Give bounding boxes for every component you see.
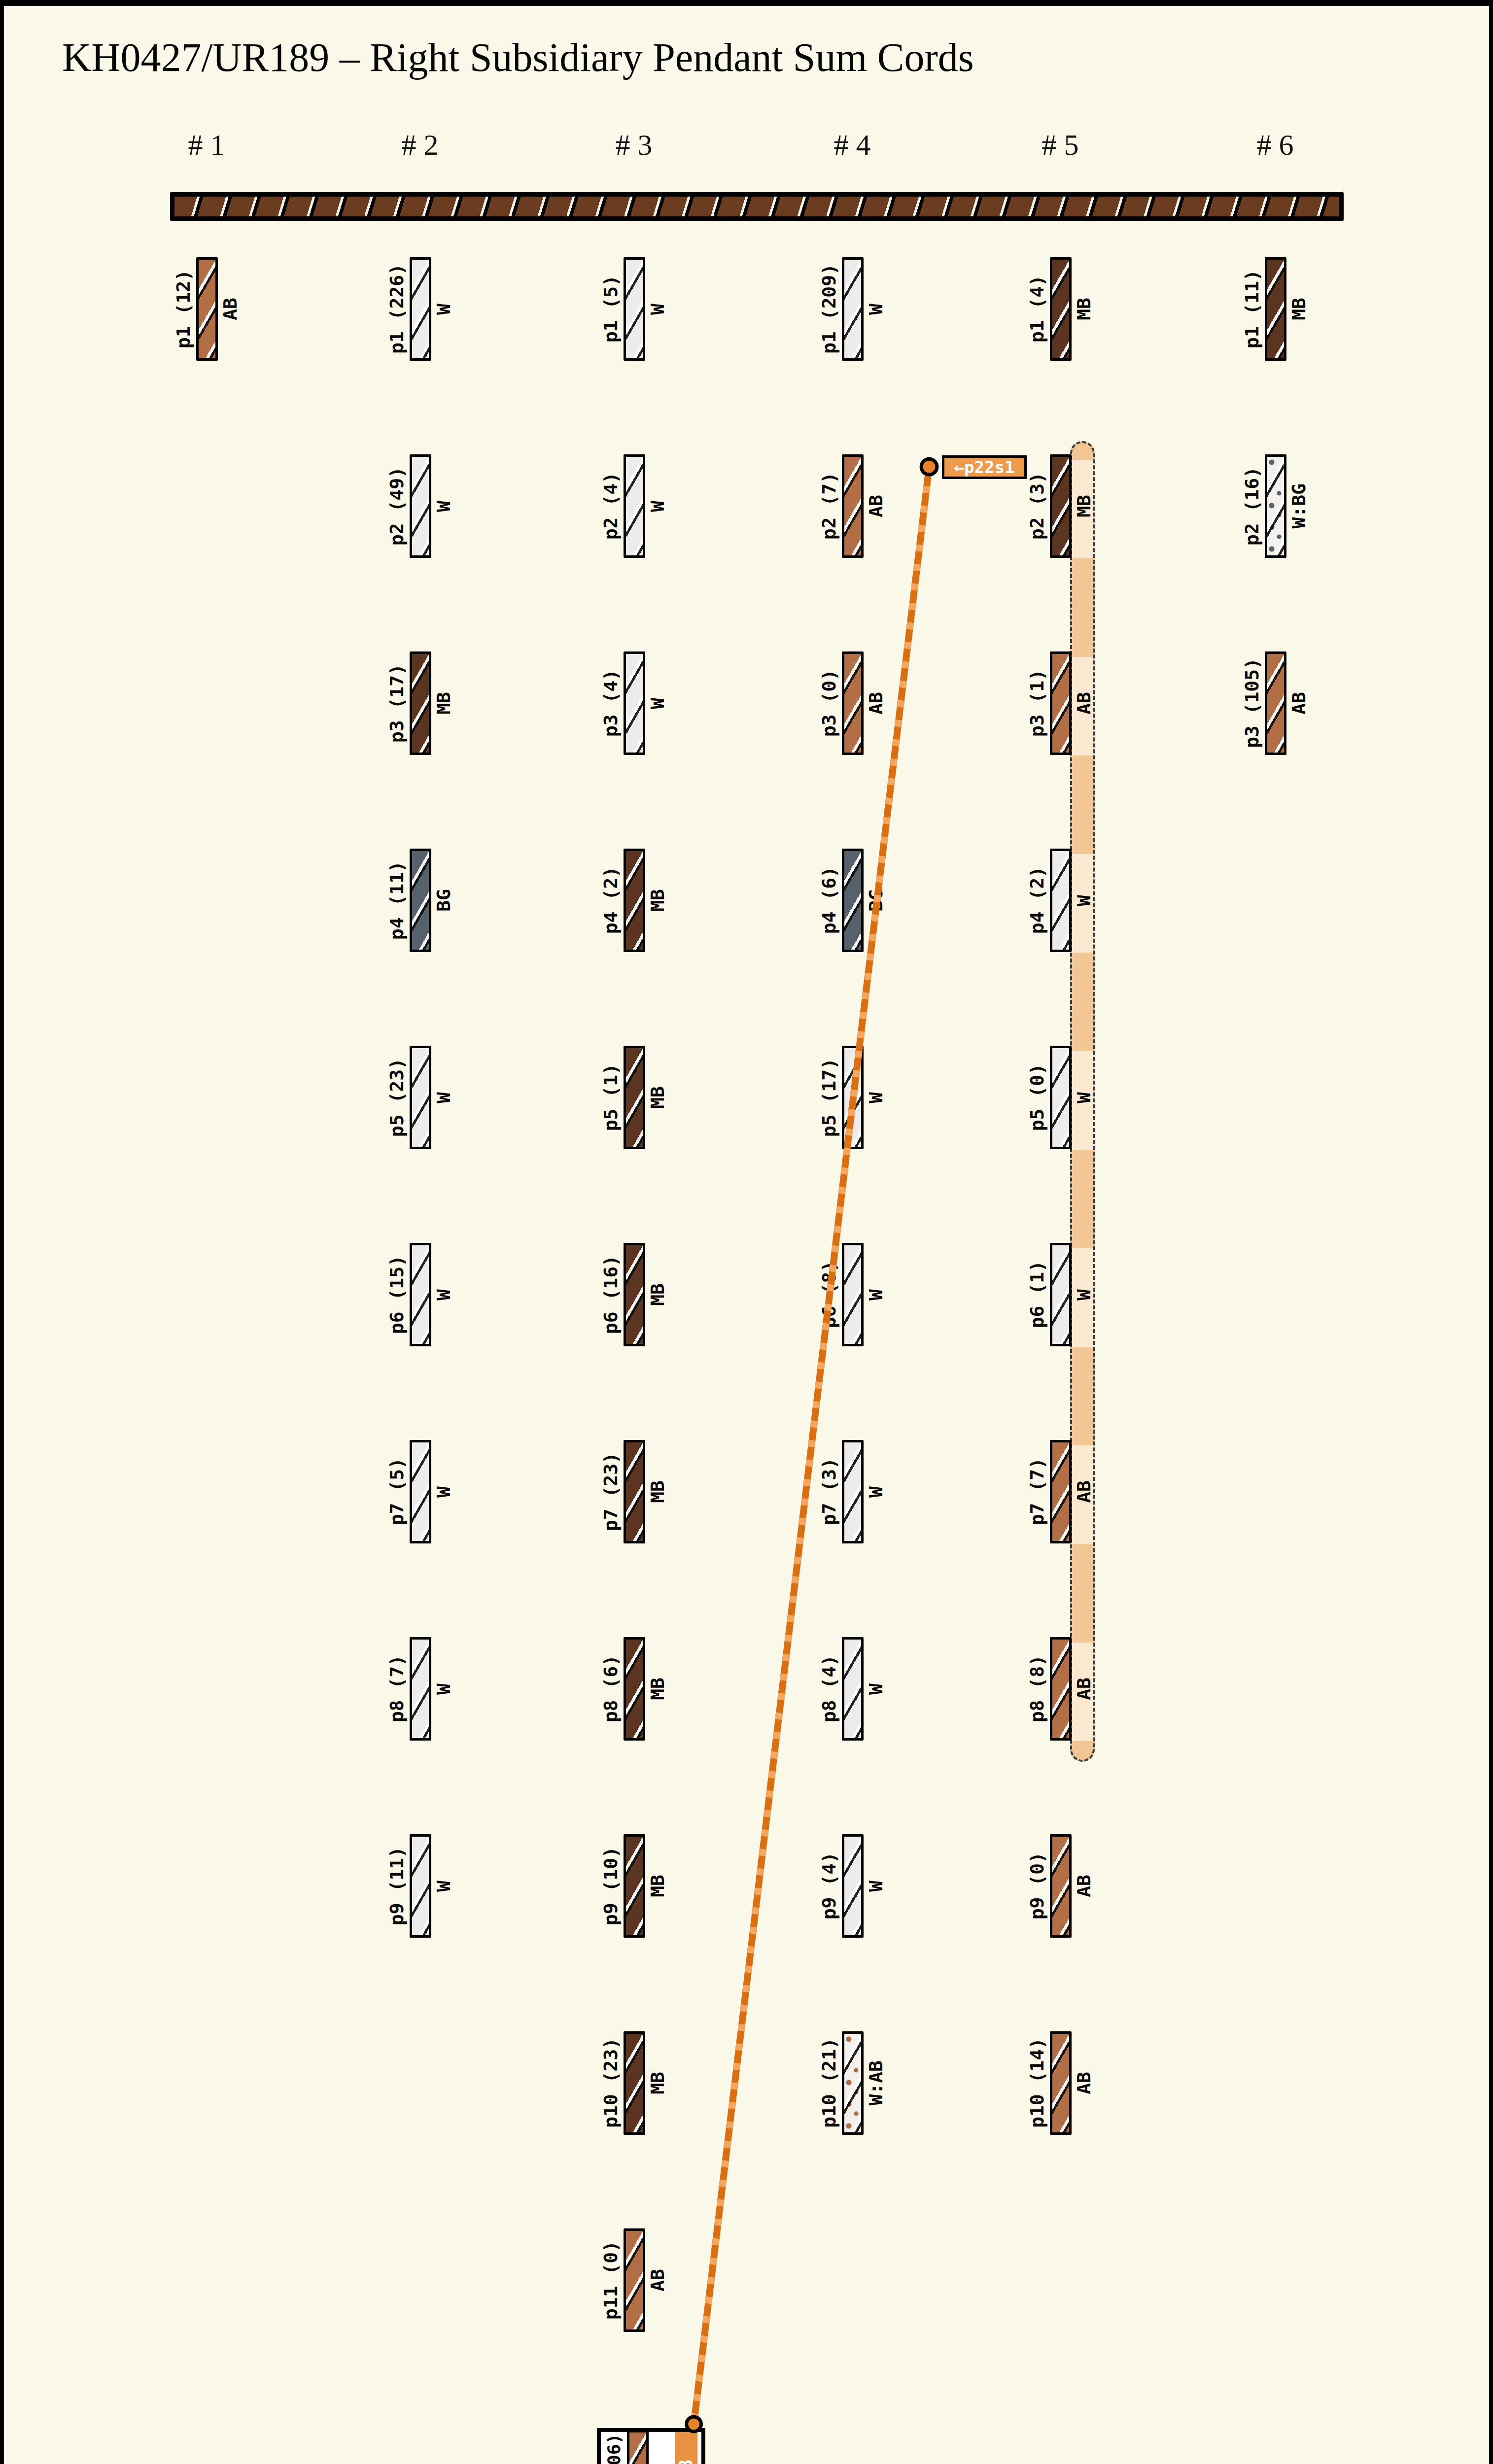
pendant-label: p1 (12) bbox=[174, 270, 194, 348]
pendant-#4-p1: p1 (209)W bbox=[819, 260, 886, 358]
pendant-label: p7 (5) bbox=[387, 1458, 407, 1525]
pendant-color-code: MB bbox=[1074, 298, 1094, 320]
pendant-bar-#4-p10[interactable] bbox=[842, 2031, 864, 2135]
pendant-#3-p4: p4 (2)MB bbox=[601, 851, 668, 950]
pendant-color-code: W bbox=[866, 1881, 886, 1892]
pendant-label: p2 (4) bbox=[601, 472, 621, 540]
pendant-#5-p1: p1 (4)MB bbox=[1027, 260, 1094, 358]
pendant-color-code: AB bbox=[1074, 692, 1094, 715]
pendant-label: p1 (226) bbox=[387, 264, 407, 354]
pendant-#3-p7: p7 (23)MB bbox=[601, 1442, 668, 1541]
pendant-label: p3 (17) bbox=[387, 664, 407, 743]
column-header-2: # 2 bbox=[366, 128, 474, 162]
pendant-color-code: AB bbox=[1074, 1480, 1094, 1503]
pendant-#2-p4: p4 (11)BG bbox=[387, 851, 454, 950]
pendant-#5-p7: p7 (7)AB bbox=[1027, 1442, 1094, 1541]
pendant-label: p2 (16) bbox=[1242, 467, 1262, 546]
connector-overlay bbox=[4, 6, 1489, 2464]
subsidiary-target-strip[interactable]: →p38 bbox=[675, 2432, 697, 2464]
pendant-bar-#5-p3[interactable] bbox=[1050, 651, 1072, 755]
pendant-label: p10 (14) bbox=[1027, 2038, 1047, 2128]
pendant-label: p1 (4) bbox=[1027, 275, 1047, 342]
pendant-bar-#3-p2[interactable] bbox=[624, 454, 645, 558]
subsidiary-connector-line bbox=[694, 467, 929, 2424]
pendant-bar-#6-p2[interactable] bbox=[1265, 454, 1286, 558]
pendant-#3-p9: p9 (10)MB bbox=[601, 1837, 668, 1935]
pendant-color-code: MB bbox=[648, 1875, 668, 1897]
pendant-bar-#5-p1[interactable] bbox=[1050, 257, 1072, 361]
pendant-bar-#3-p4[interactable] bbox=[624, 849, 645, 952]
pendant-bar-#3-p5[interactable] bbox=[624, 1046, 645, 1149]
page-title: KH0427/UR189 – Right Subsidiary Pendant … bbox=[62, 34, 974, 81]
subsidiary-connector-line-dashes bbox=[694, 467, 929, 2424]
pendant-label: p4 (11) bbox=[387, 861, 407, 940]
pendant-bar-#2-p1[interactable] bbox=[410, 257, 431, 361]
pendant-bar-#5-p6[interactable] bbox=[1050, 1243, 1072, 1346]
pendant-bar-#5-p10[interactable] bbox=[1050, 2031, 1072, 2135]
pendant-color-code: MB bbox=[648, 889, 668, 912]
pendant-bar-#3-p7[interactable] bbox=[624, 1440, 645, 1543]
pendant-bar-#4-p6[interactable] bbox=[842, 1243, 864, 1346]
connector-start-marker bbox=[921, 459, 937, 475]
pendant-#3-p2: p2 (4)W bbox=[601, 457, 668, 555]
pendant-#2-p7: p7 (5)W bbox=[387, 1442, 454, 1541]
pendant-label: p1 (11) bbox=[1242, 270, 1262, 348]
pendant-bar-#5-p5[interactable] bbox=[1050, 1046, 1072, 1149]
pendant-color-code: W bbox=[866, 1683, 886, 1695]
pendant-color-code: BG bbox=[866, 889, 886, 912]
pendant-#6-p1: p1 (11)MB bbox=[1242, 260, 1309, 358]
pendant-#4-p4: p4 (6)BG bbox=[819, 851, 886, 950]
pendant-bar-#4-p2[interactable] bbox=[842, 454, 864, 558]
column-header-1: # 1 bbox=[152, 128, 261, 162]
pendant-label: p10 (23) bbox=[601, 2038, 621, 2128]
pendant-#6-p3: p3 (105)AB bbox=[1242, 654, 1309, 753]
pendant-#2-p5: p5 (23)W bbox=[387, 1048, 454, 1147]
pendant-color-code: W:AB bbox=[866, 2060, 886, 2106]
pendant-bar-#4-p5[interactable] bbox=[842, 1046, 864, 1149]
pendant-label: p3 (1) bbox=[1027, 669, 1047, 737]
pendant-bar-#4-p7[interactable] bbox=[842, 1440, 864, 1543]
pendant-bar-#3-p3[interactable] bbox=[624, 651, 645, 755]
pendant-label: p6 (15) bbox=[387, 1255, 407, 1334]
pendant-bar-#2-p6[interactable] bbox=[410, 1243, 431, 1346]
pendant-color-code: MB bbox=[1289, 298, 1309, 320]
pendant-color-code: W bbox=[1074, 1289, 1094, 1300]
pendant-color-code: W bbox=[434, 1881, 454, 1892]
pendant-label: p11 (0) bbox=[601, 2241, 621, 2320]
pendant-#5-p10: p10 (14)AB bbox=[1027, 2034, 1094, 2132]
column-header-5: # 5 bbox=[1006, 128, 1114, 162]
pendant-bar-#2-p2[interactable] bbox=[410, 454, 431, 558]
pendant-color-code: W bbox=[866, 1092, 886, 1103]
pendant-color-code: BG bbox=[434, 889, 454, 912]
pendant-color-code: W bbox=[434, 1683, 454, 1695]
pendant-#5-p5: p5 (0)W bbox=[1027, 1048, 1094, 1147]
subsidiary-target-label: →p38 bbox=[676, 2459, 696, 2464]
pendant-color-code: W bbox=[434, 1092, 454, 1103]
pendant-#2-p2: p2 (49)W bbox=[387, 457, 454, 555]
pendant-bar-#4-p3[interactable] bbox=[842, 651, 864, 755]
pendant-color-code: W bbox=[1074, 895, 1094, 906]
pendant-#4-p3: p3 (0)AB bbox=[819, 654, 886, 753]
pendant-color-code: W bbox=[866, 1289, 886, 1300]
pendant-label: p5 (17) bbox=[819, 1058, 839, 1137]
pendant-color-code: W bbox=[434, 304, 454, 315]
column-header-3: # 3 bbox=[580, 128, 688, 162]
pendant-color-code: AB bbox=[648, 2269, 668, 2292]
pendant-bar-#3-p1[interactable] bbox=[624, 257, 645, 361]
pendant-color-code: W bbox=[648, 698, 668, 709]
pendant-label: p6 (1) bbox=[1027, 1261, 1047, 1328]
pendant-color-code: W bbox=[648, 501, 668, 512]
pendant-bar-#5-p8[interactable] bbox=[1050, 1637, 1072, 1741]
pendant-label: p5 (0) bbox=[1027, 1063, 1047, 1131]
pendant-#2-p6: p6 (15)W bbox=[387, 1245, 454, 1344]
pendant-color-code: AB bbox=[1074, 2072, 1094, 2094]
pendant-bar-#5-p9[interactable] bbox=[1050, 1834, 1072, 1938]
pendant-label: p1 (5) bbox=[601, 275, 621, 342]
pendant-color-code: AB bbox=[866, 692, 886, 715]
pendant-label: p4 (2) bbox=[601, 866, 621, 934]
pendant-label: p1 (209) bbox=[819, 264, 839, 354]
pendant-#3-p5: p5 (1)MB bbox=[601, 1048, 668, 1147]
pendant-label: p8 (4) bbox=[819, 1655, 839, 1722]
pendant-bar-#2-p9[interactable] bbox=[410, 1834, 431, 1938]
pendant-color-code: W bbox=[434, 1486, 454, 1498]
pendant-color-code: W bbox=[434, 501, 454, 512]
pendant-label: p5 (23) bbox=[387, 1058, 407, 1137]
pendant-bar-#2-p4[interactable] bbox=[410, 849, 431, 952]
pendant-bar-#4-p1[interactable] bbox=[842, 257, 864, 361]
pendant-bar-#6-p3[interactable] bbox=[1265, 651, 1286, 755]
pendant-label: p7 (23) bbox=[601, 1452, 621, 1531]
pendant-label: p4 (6) bbox=[819, 866, 839, 934]
pendant-color-code: MB bbox=[648, 2072, 668, 2094]
pendant-bar-#2-p5[interactable] bbox=[410, 1046, 431, 1149]
pendant-color-code: MB bbox=[648, 1283, 668, 1306]
pendant-color-code: W bbox=[866, 304, 886, 315]
pendant-#2-p8: p8 (7)W bbox=[387, 1640, 454, 1738]
pendant-#1-p1: p1 (12)AB bbox=[174, 260, 241, 358]
column-header-4: # 4 bbox=[798, 128, 906, 162]
pendant-color-code: MB bbox=[434, 692, 454, 715]
pendant-#4-p8: p8 (4)W bbox=[819, 1640, 886, 1738]
pendant-#2-p3: p3 (17)MB bbox=[387, 654, 454, 753]
pendant-#4-p10: p10 (21)W:AB bbox=[819, 2034, 886, 2132]
pendant-color-code: W:BG bbox=[1289, 483, 1309, 529]
pendant-#5-p8: p8 (8)AB bbox=[1027, 1640, 1094, 1738]
pendant-bar-#5-p7[interactable] bbox=[1050, 1440, 1072, 1543]
pendant-#4-p7: p7 (3)W bbox=[819, 1442, 886, 1541]
pendant-#6-p2: p2 (16)W:BG bbox=[1242, 457, 1309, 555]
pendant-bar-#1-p1[interactable] bbox=[196, 257, 218, 361]
column-header-6: # 6 bbox=[1221, 128, 1329, 162]
pendant-label: p2 (49) bbox=[387, 467, 407, 546]
pendant-#2-p1: p1 (226)W bbox=[387, 260, 454, 358]
pendant-label: p7 (3) bbox=[819, 1458, 839, 1525]
khipu-diagram-canvas: KH0427/UR189 – Right Subsidiary Pendant … bbox=[0, 0, 1493, 2464]
pendant-label: p9 (11) bbox=[387, 1847, 407, 1925]
pendant-#3-p10: p10 (23)MB bbox=[601, 2034, 668, 2132]
pendant-bar-#6-p1[interactable] bbox=[1265, 257, 1286, 361]
pendant-label: p6 (8) bbox=[819, 1261, 839, 1328]
pendant-bar-#4-p9[interactable] bbox=[842, 1834, 864, 1938]
pendant-#5-p2: p2 (3)MB bbox=[1027, 457, 1094, 555]
pendant-label: p8 (6) bbox=[601, 1655, 621, 1722]
pendant-bar-#5-p2[interactable] bbox=[1050, 454, 1072, 558]
pendant-color-code: W bbox=[866, 1486, 886, 1498]
pendant-#3-p11: p11 (0)AB bbox=[601, 2231, 668, 2329]
subsidiary-origin-tag[interactable]: ←p22s1 bbox=[942, 455, 1027, 479]
pendant-color-code: MB bbox=[648, 1677, 668, 1700]
pendant-bar-#2-p8[interactable] bbox=[410, 1637, 431, 1741]
pendant-bar-#3-p6[interactable] bbox=[624, 1243, 645, 1346]
pendant-#5-p9: p9 (0)AB bbox=[1027, 1837, 1094, 1935]
pendant-#4-p6: p6 (8)W bbox=[819, 1245, 886, 1344]
pendant-label: p9 (4) bbox=[819, 1852, 839, 1919]
pendant-color-code: AB bbox=[1074, 1875, 1094, 1897]
pendant-bar-#2-p3[interactable] bbox=[410, 651, 431, 755]
pendant-label: p5 (1) bbox=[601, 1063, 621, 1131]
pendant-#2-p9: p9 (11)W bbox=[387, 1837, 454, 1935]
pendant-color-code: AB bbox=[866, 495, 886, 517]
pendant-label: p3 (0) bbox=[819, 669, 839, 737]
pendant-#4-p2: p2 (7)AB bbox=[819, 457, 886, 555]
pendant-bar-#3-p12[interactable] bbox=[627, 2430, 649, 2464]
pendant-color-code: MB bbox=[1074, 495, 1094, 517]
pendant-color-code: MB bbox=[648, 1086, 668, 1109]
pendant-color-code: W bbox=[648, 304, 668, 315]
pendant-bar-#3-p9[interactable] bbox=[624, 1834, 645, 1938]
pendant-bar-#3-p8[interactable] bbox=[624, 1637, 645, 1741]
pendant-color-code: MB bbox=[648, 1480, 668, 1503]
pendant-#5-p6: p6 (1)W bbox=[1027, 1245, 1094, 1344]
pendant-#3-p1: p1 (5)W bbox=[601, 260, 668, 358]
pendant-#5-p4: p4 (2)W bbox=[1027, 851, 1094, 950]
pendant-bar-#3-p11[interactable] bbox=[624, 2228, 645, 2332]
pendant-label: p7 (7) bbox=[1027, 1458, 1047, 1525]
pendant-color-code: AB bbox=[220, 298, 241, 320]
pendant-label: p3 (4) bbox=[601, 669, 621, 737]
pendant-#4-p9: p9 (4)W bbox=[819, 1837, 886, 1935]
pendant-label: p6 (16) bbox=[601, 1255, 621, 1334]
pendant-#3-p6: p6 (16)MB bbox=[601, 1245, 668, 1344]
pendant-bar-#4-p4[interactable] bbox=[842, 849, 864, 952]
pendant-label: p9 (10) bbox=[601, 1847, 621, 1925]
pendant-#3-p3: p3 (4)W bbox=[601, 654, 668, 753]
pendant-color-code: AB bbox=[1289, 692, 1309, 715]
pendant-label: p4 (2) bbox=[1027, 866, 1047, 934]
pendant-color-code: AB bbox=[1074, 1677, 1094, 1700]
pendant-bar-#3-p10[interactable] bbox=[624, 2031, 645, 2135]
pendant-#4-p5: p5 (17)W bbox=[819, 1048, 886, 1147]
pendant-label: p9 (0) bbox=[1027, 1852, 1047, 1919]
pendant-color-code: W bbox=[434, 1289, 454, 1300]
pendant-#3-p8: p8 (6)MB bbox=[601, 1640, 668, 1738]
pendant-bar-#4-p8[interactable] bbox=[842, 1637, 864, 1741]
pendant-#5-p3: p3 (1)AB bbox=[1027, 654, 1094, 753]
pendant-color-code: W bbox=[1074, 1092, 1094, 1103]
pendant-label: p8 (8) bbox=[1027, 1655, 1047, 1722]
pendant-bar-#5-p4[interactable] bbox=[1050, 849, 1072, 952]
pendant-bar-#2-p7[interactable] bbox=[410, 1440, 431, 1543]
pendant-label: p10 (21) bbox=[819, 2038, 839, 2128]
pendant-label: p12 (106) bbox=[605, 2433, 624, 2464]
pendant-label: p2 (3) bbox=[1027, 472, 1047, 540]
pendant-label: p2 (7) bbox=[819, 472, 839, 540]
highlighted-pendant-#3-p12[interactable]: p12 (106)AB→p38 bbox=[597, 2428, 705, 2464]
main-cord-bar[interactable] bbox=[170, 192, 1344, 221]
pendant-label: p3 (105) bbox=[1242, 658, 1262, 748]
pendant-label: p8 (7) bbox=[387, 1655, 407, 1722]
